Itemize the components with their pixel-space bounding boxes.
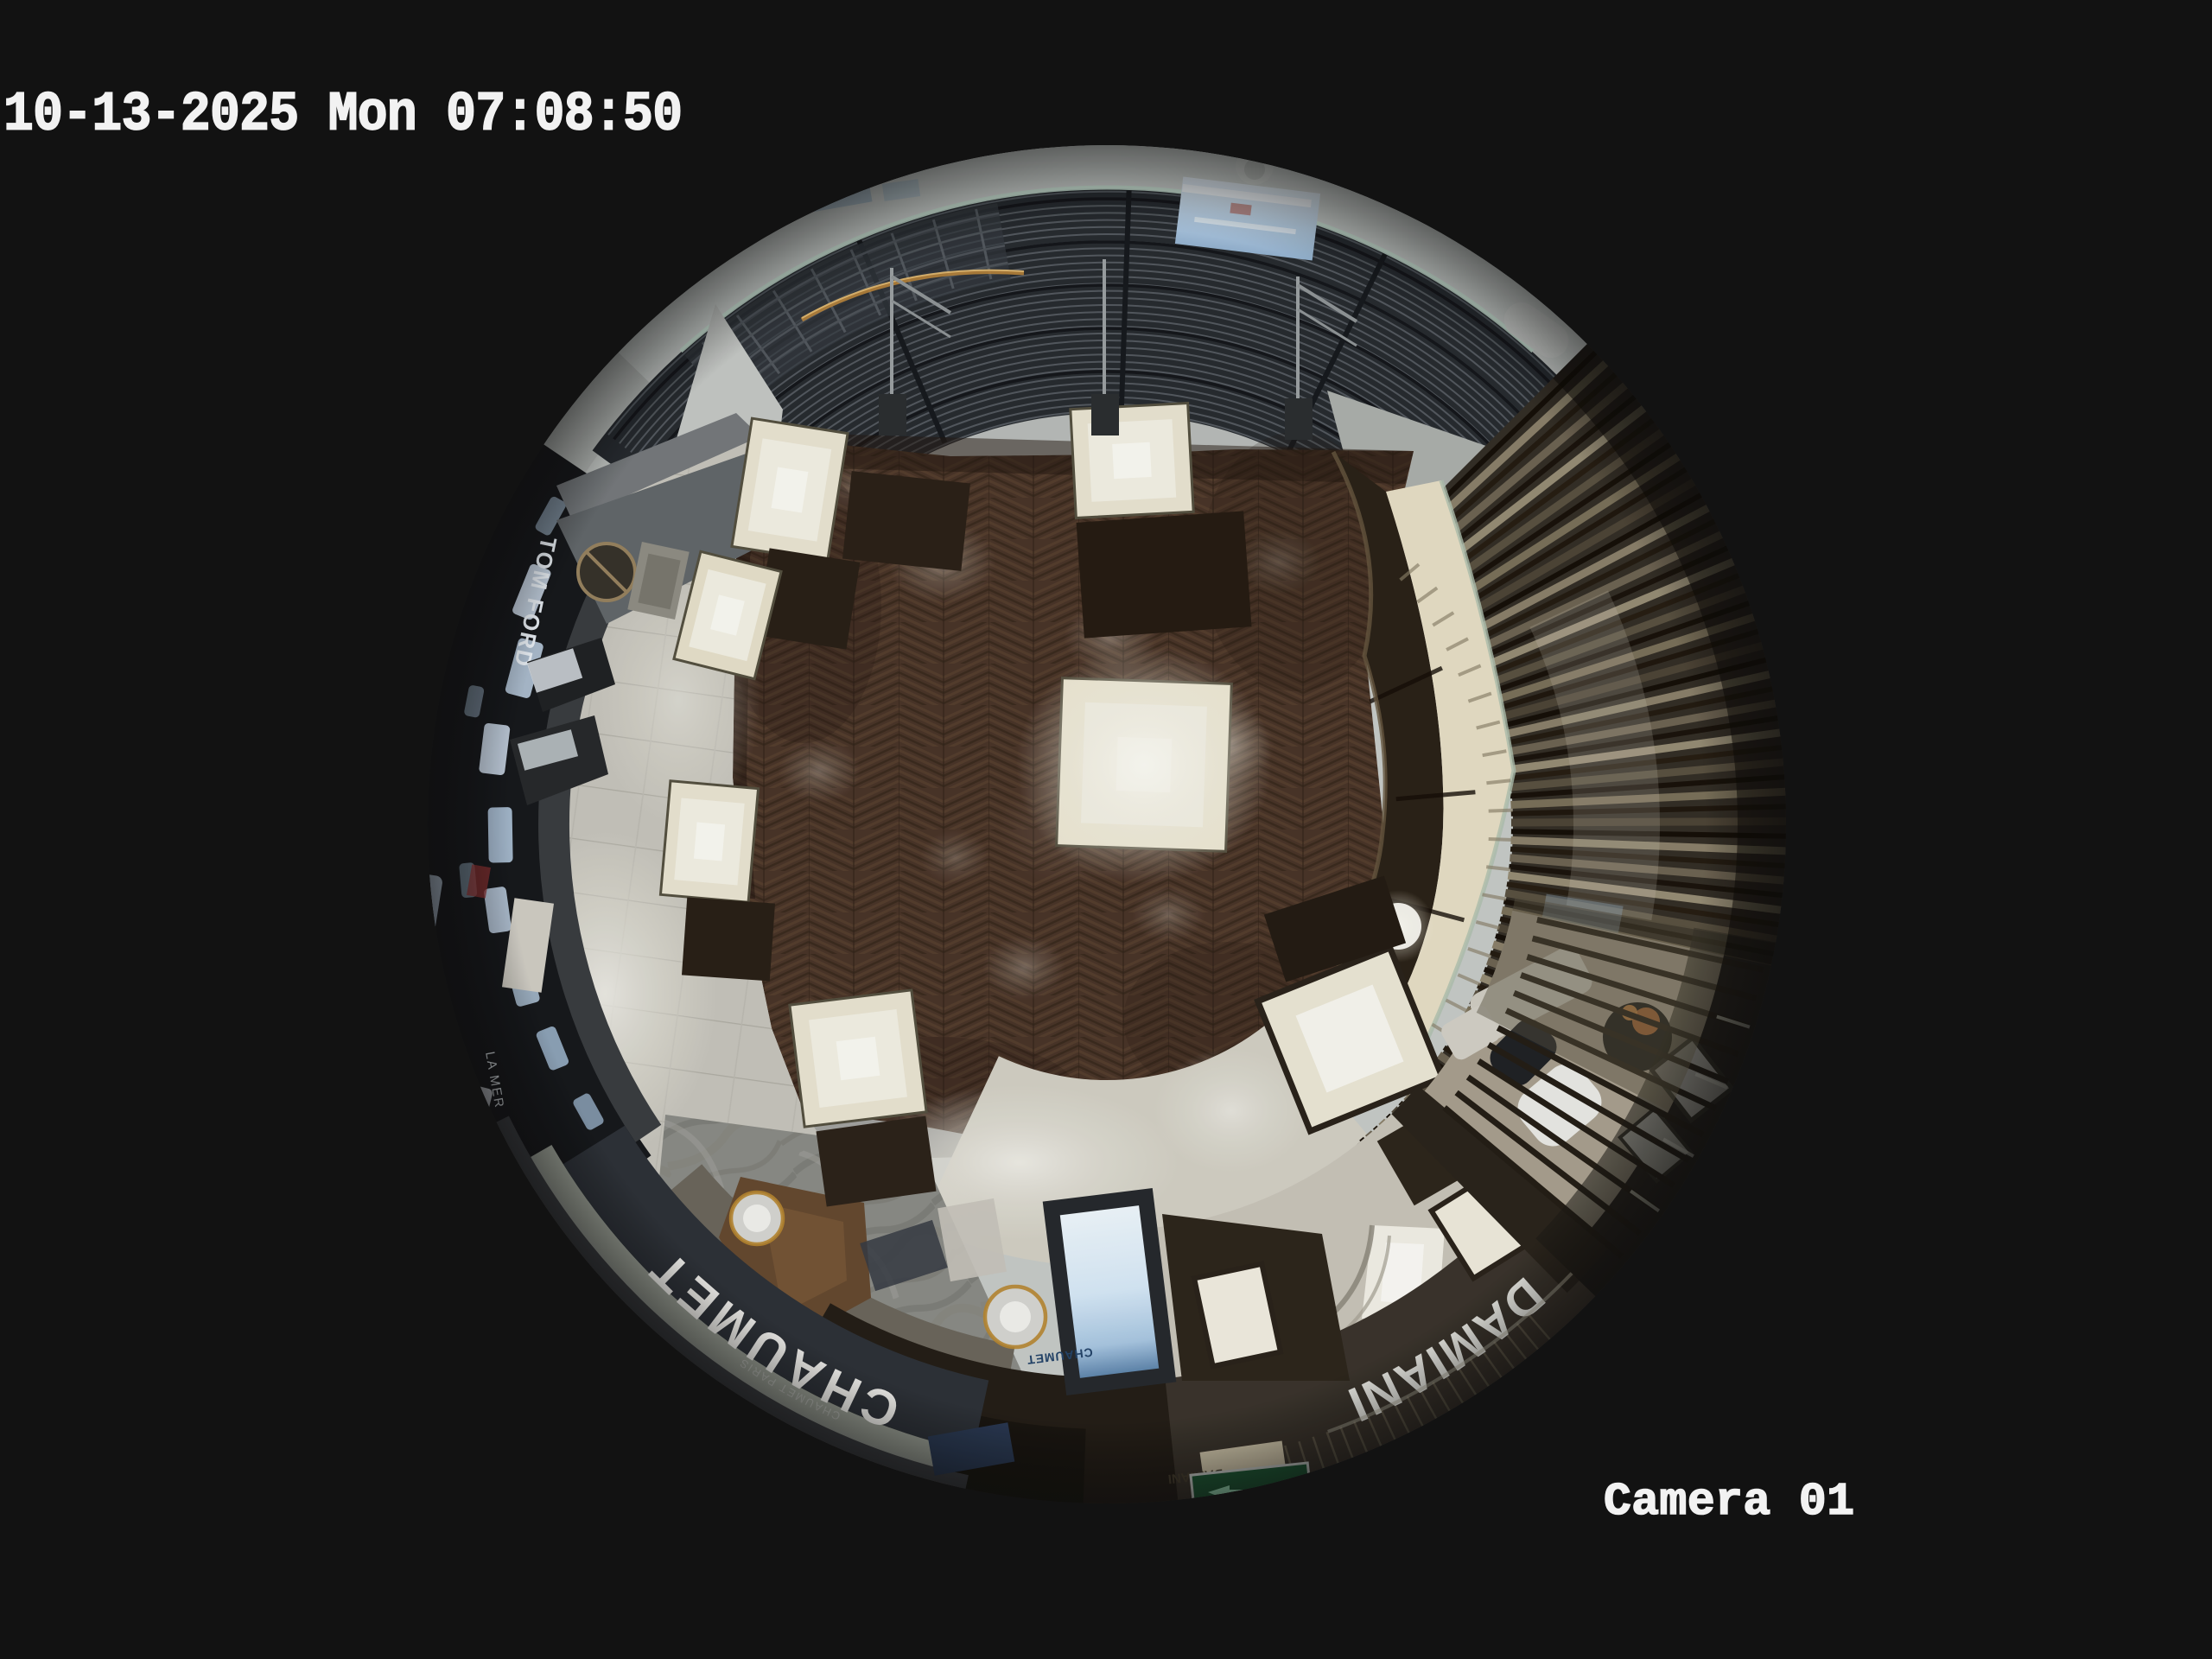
svg-text:Camera 01: Camera 01 xyxy=(1604,1476,1854,1528)
svg-text:10-13-2025 Mon 07:08:50: 10-13-2025 Mon 07:08:50 xyxy=(3,84,683,146)
